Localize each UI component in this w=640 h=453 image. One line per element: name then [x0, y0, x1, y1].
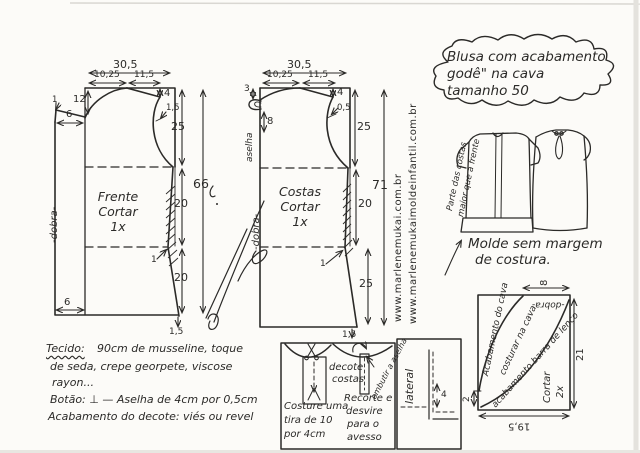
sew-strip-line1: Costure uma [284, 402, 348, 413]
back-qty: 1x [270, 214, 330, 229]
front-name: Frente [88, 189, 148, 204]
neck-finish-note-line: Acabamento do decote: viés ou revel [48, 411, 253, 423]
back-hem-drop: 1,5 [342, 331, 356, 340]
back-shoulder-drop: 4 [337, 88, 343, 99]
front-hem-ext: 6 [64, 298, 70, 309]
front-hem-drop: 1,5 [169, 328, 183, 337]
gode-bottom-measure: 19,5 [508, 420, 530, 431]
back-hip-len: 25 [359, 278, 373, 290]
front-cut: Cortar [88, 204, 148, 219]
keyhole-neckline [556, 136, 563, 159]
back-piece-label: Costas Cortar 1x [270, 184, 330, 229]
front-waist-len: 20 [174, 198, 188, 210]
back-neck-label-2: costas [332, 375, 364, 386]
scanned-sewing-pattern: 30,5 10,25 11,5 12 1 6 4 1,5 25 20 20 66… [0, 0, 640, 453]
front-piece-label: Frente Cortar 1x [88, 189, 148, 234]
cut-turn-line2: desvire [346, 407, 383, 418]
front-shoulder-width: 11,5 [134, 71, 154, 80]
sew-strip-line2: tira de 10 [284, 416, 333, 427]
front-shoulder-drop: 4 [164, 89, 170, 100]
back-cut: Cortar [270, 199, 330, 214]
title-line-2: godê" na cava [447, 66, 606, 83]
title-line-3: tamanho 50 [447, 83, 606, 100]
website-infantil: www.marlenemukaimoldeinfantil.com.br [409, 103, 420, 324]
lateral-measure: 4 [441, 391, 447, 400]
front-fold-label: -dobra- [50, 207, 61, 243]
back-neck-rise: 3 [244, 85, 250, 94]
front-qty: 1x [88, 219, 148, 234]
lateral-label: lateral [404, 369, 416, 404]
front-armhole-len: 25 [171, 121, 185, 133]
front-armhole-notch: 1,5 [166, 104, 180, 113]
cut-turn-line1: Recorte e [344, 394, 392, 405]
signature-scribble [206, 186, 267, 329]
back-loop-label: aselha [246, 133, 255, 162]
front-hip-len: 20 [174, 272, 188, 284]
back-neck-label-1: decote [329, 363, 363, 374]
title-line-1: Blusa com acabamento [447, 49, 606, 66]
back-loop-len: 8 [267, 117, 273, 128]
fabric-note-line2: de seda, crepe georpete, viscose [50, 361, 232, 373]
button-note-line: Botão: ⊥ — Aselha de 4cm por 0,5cm [50, 394, 258, 406]
front-waist-in: 1 [151, 256, 157, 265]
gode-cut-label: Cortar [543, 372, 554, 403]
back-waist-len: 20 [358, 198, 372, 210]
back-neck-width: 10,25 [267, 71, 293, 80]
website-main: www.marlenemukai.com.br [394, 174, 405, 322]
front-shoulder-ext: 6 [66, 110, 72, 121]
back-armhole-notch: 0,5 [337, 104, 351, 113]
back-name: Costas [270, 184, 330, 199]
back-armhole-len: 25 [357, 121, 371, 133]
gode-left-measure: 2 [463, 396, 472, 402]
sew-strip-line3: por 4cm [284, 430, 325, 441]
note-arrow [445, 241, 461, 275]
front-neck-depth: 12 [73, 95, 86, 106]
fabric-note-line3: rayon... [52, 377, 94, 389]
front-neck-width: 10,25 [94, 71, 120, 80]
cut-turn-line4: avesso [347, 433, 382, 444]
gode-fold-label: -dobra- [532, 299, 565, 308]
back-top-width: 30,5 [287, 59, 312, 71]
front-total-len: 66 [193, 177, 209, 190]
back-total-len: 71 [372, 178, 388, 191]
front-tip-rise: 1 [52, 96, 57, 105]
title-text: Blusa com acabamento godê" na cava taman… [447, 49, 606, 100]
back-waist-in: 1 [320, 260, 326, 269]
fabric-note-line1: 90cm de musseline, toque [97, 343, 243, 355]
back-fold-label: -dobra- [252, 214, 263, 250]
sketch-caption-2: de costura. [475, 253, 551, 267]
cut-turn-line3: para o [347, 420, 379, 431]
gode-top-measure: 8 [540, 280, 551, 286]
fabric-note-label: Tecido: [46, 343, 85, 355]
turn-arrow-icon [353, 343, 366, 352]
gode-side-measure: 21 [576, 348, 587, 361]
gode-cut-qty: 2x [556, 386, 567, 398]
sketch-caption-1: Molde sem margem [468, 237, 603, 251]
back-shoulder-width: 11,5 [308, 71, 328, 80]
front-top-width: 30,5 [113, 59, 138, 71]
